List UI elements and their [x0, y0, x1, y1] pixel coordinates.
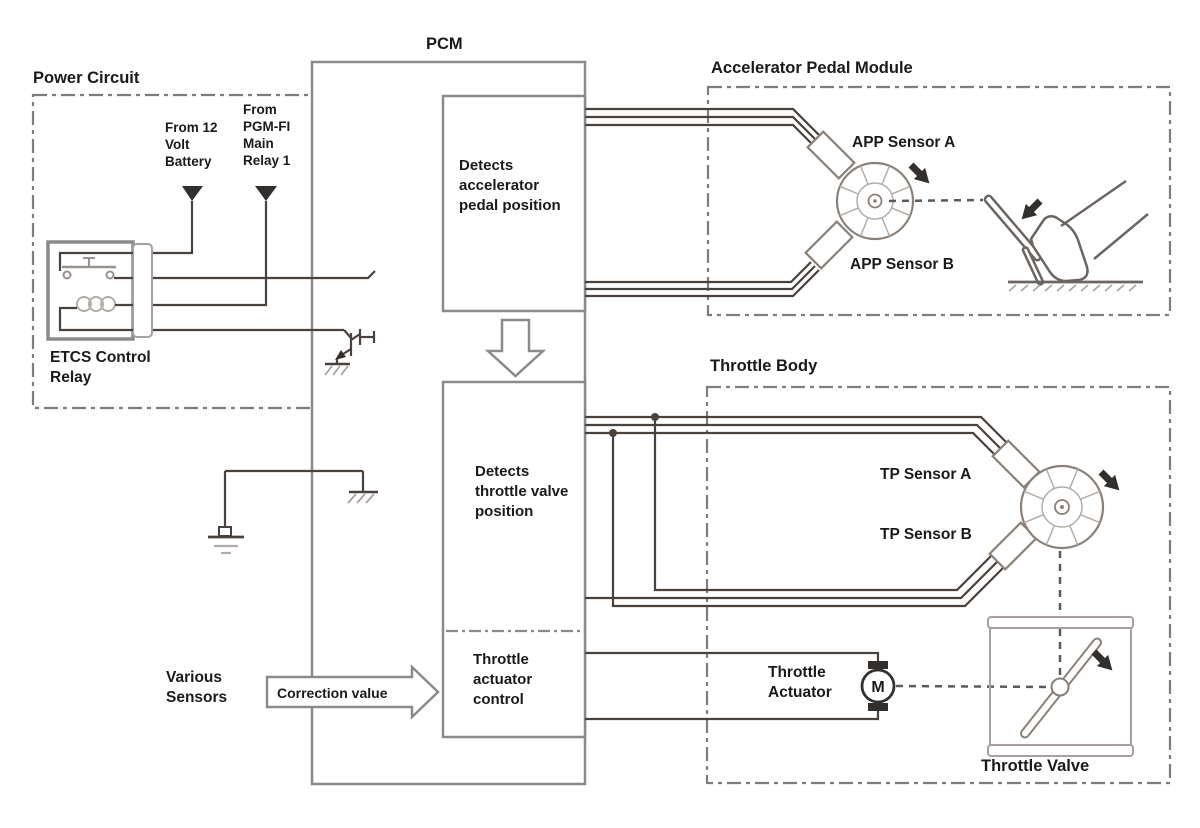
- tp-sensor-wires: [585, 413, 1006, 606]
- detects-throttle-valve-text: Detects throttle valve position: [475, 462, 575, 521]
- diagram-canvas: M Power Circuit PCM Accelerator Pedal Mo…: [0, 0, 1200, 828]
- throttle-body-dashed-box: [707, 387, 1170, 783]
- tp-sensor-b-label: TP Sensor B: [880, 525, 972, 545]
- from-battery-label: From 12 Volt Battery: [165, 119, 225, 170]
- etcs-relay-symbol: [48, 242, 152, 339]
- throttle-valve-label: Throttle Valve: [981, 756, 1089, 778]
- app-sensor-a-label: APP Sensor A: [852, 133, 955, 153]
- pgm-fi-feed-triangle: [255, 186, 277, 201]
- throttle-actuator-motor: M: [862, 661, 894, 711]
- chassis-ground-symbol: [208, 527, 244, 553]
- correction-value-label: Correction value: [277, 684, 387, 702]
- throttle-actuator-label: Throttle Actuator: [768, 663, 858, 704]
- from-pgm-fi-label: From PGM-FI Main Relay 1: [243, 101, 309, 170]
- tp-sensor-a-label: TP Sensor A: [880, 465, 971, 485]
- etcs-relay-label: ETCS Control Relay: [50, 348, 180, 389]
- motor-label: M: [871, 679, 884, 696]
- throttle-body-title: Throttle Body: [710, 356, 817, 378]
- pcm-title: PCM: [426, 34, 463, 56]
- pedal-motion-arrow-icon: [1016, 195, 1046, 225]
- detects-accel-pedal-text: Detects accelerator pedal position: [459, 156, 573, 215]
- app-sensor-b-label: APP Sensor B: [850, 255, 954, 275]
- power-circuit-title: Power Circuit: [33, 68, 139, 90]
- various-sensors-label: Various Sensors: [166, 668, 258, 709]
- accelerator-pedal-module-title: Accelerator Pedal Module: [711, 58, 913, 80]
- throttle-actuator-control-text: Throttle actuator control: [473, 650, 573, 709]
- app-sensor-wires: [585, 109, 819, 296]
- tp-sensor-drawing: [990, 441, 1103, 570]
- battery-feed-triangle: [182, 186, 203, 201]
